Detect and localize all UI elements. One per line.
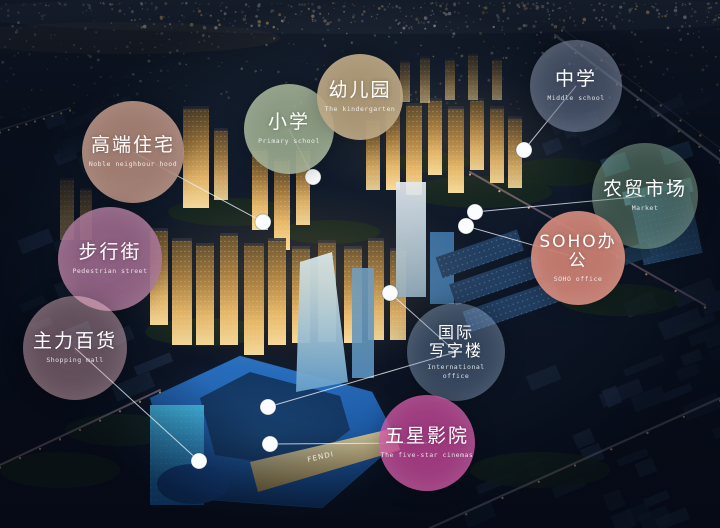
masterplan-image: FENDI 高端住宅Noble neighbour hood步行街Pedestr… <box>0 0 720 528</box>
bubble-zh-label: 国际 写字楼 <box>429 324 483 361</box>
bubble-en-label: Noble neighbour hood <box>89 160 177 168</box>
bubble-en-label: Primary school <box>258 137 320 145</box>
bubble-kindergarten: 幼儿园The kindergarten <box>317 54 403 140</box>
bubble-en-label: International office <box>427 363 484 380</box>
bubble-zh-label: 幼儿园 <box>328 80 391 102</box>
bubble-soho: SOHO办公SOHO office <box>531 211 625 305</box>
bubble-zh-label: 五星影院 <box>385 426 469 448</box>
bubble-middle: 中学Middle school <box>530 40 622 132</box>
bubble-zh-label: 主力百货 <box>33 331 117 353</box>
bubble-en-label: The kindergarten <box>325 105 396 113</box>
bubble-zh-label: SOHO办公 <box>531 233 625 272</box>
bubble-zh-label: 小学 <box>268 112 310 134</box>
bubble-zh-label: 农贸市场 <box>603 179 687 201</box>
bubble-cinema: 五星影院The five-star cinemas <box>379 395 475 491</box>
bubble-en-label: The five-star cinemas <box>381 451 474 459</box>
bubble-shopping: 主力百货Shopping mall <box>23 296 127 400</box>
bubble-en-label: Market <box>632 204 658 212</box>
bubble-zh-label: 中学 <box>555 69 597 91</box>
label-bubbles-layer: 高端住宅Noble neighbour hood步行街Pedestrian st… <box>0 0 720 528</box>
bubble-intl: 国际 写字楼International office <box>407 303 505 401</box>
bubble-zh-label: 步行街 <box>78 242 141 264</box>
bubble-en-label: SOHO office <box>554 275 603 283</box>
bubble-zh-label: 高端住宅 <box>91 135 175 157</box>
bubble-en-label: Shopping mall <box>46 356 103 364</box>
bubble-noble: 高端住宅Noble neighbour hood <box>82 101 184 203</box>
bubble-en-label: Middle school <box>547 94 604 102</box>
bubble-en-label: Pedestrian street <box>72 267 147 275</box>
